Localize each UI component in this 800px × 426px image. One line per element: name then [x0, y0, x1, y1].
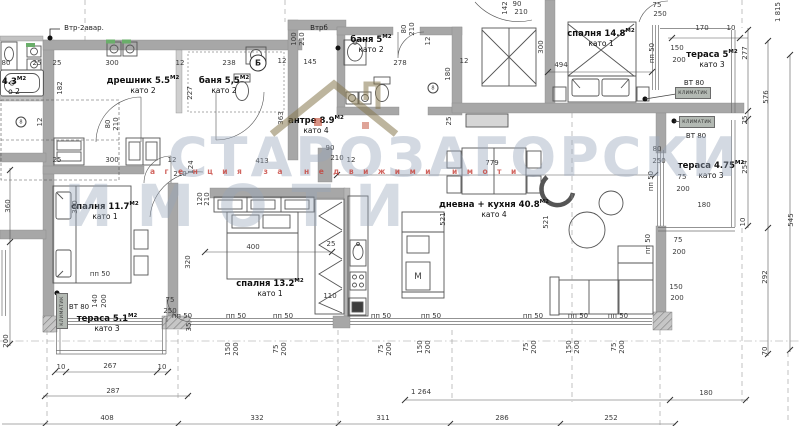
closet-fixtures	[54, 40, 160, 166]
floor-plan-drawing	[0, 0, 800, 426]
bathroom-5-fixtures	[344, 32, 424, 104]
kitchen-units	[348, 196, 444, 316]
dimension-lines	[2, 27, 793, 426]
window-lines	[2, 25, 735, 354]
coffee-tables	[569, 191, 623, 248]
bedroom-148-furniture	[553, 1, 668, 102]
walls	[0, 0, 744, 332]
bathroom-55-fixtures	[188, 47, 284, 140]
armchair	[541, 177, 573, 205]
bedroom-117-furniture	[53, 156, 171, 283]
axis-dashed-lines	[0, 0, 800, 426]
sofa	[550, 246, 653, 315]
dining-table	[447, 148, 541, 194]
reference-markers	[48, 29, 682, 300]
